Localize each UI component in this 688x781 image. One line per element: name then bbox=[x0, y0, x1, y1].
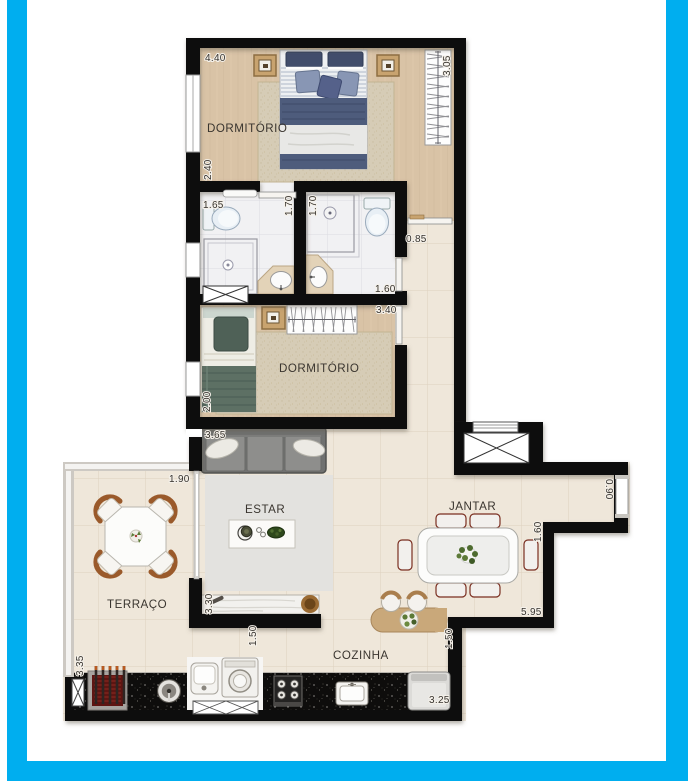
svg-text:COZINHA: COZINHA bbox=[333, 649, 389, 662]
svg-text:0.85: 0.85 bbox=[406, 234, 427, 245]
svg-text:3.40: 3.40 bbox=[376, 305, 397, 316]
svg-text:DORMITÓRIO: DORMITÓRIO bbox=[279, 362, 359, 375]
svg-text:1.90: 1.90 bbox=[169, 474, 190, 485]
svg-text:3.30: 3.30 bbox=[204, 593, 215, 614]
svg-text:2.40: 2.40 bbox=[203, 159, 214, 180]
svg-text:TERRAÇO: TERRAÇO bbox=[107, 598, 167, 611]
svg-text:3.25: 3.25 bbox=[429, 695, 450, 706]
svg-text:1.70: 1.70 bbox=[308, 195, 319, 216]
svg-text:JANTAR: JANTAR bbox=[449, 500, 496, 513]
svg-text:1.60: 1.60 bbox=[375, 284, 396, 295]
svg-text:1.60: 1.60 bbox=[533, 521, 544, 542]
svg-text:1.65: 1.65 bbox=[203, 200, 224, 211]
svg-text:0.90: 0.90 bbox=[603, 479, 614, 500]
svg-text:3.35: 3.35 bbox=[75, 655, 86, 676]
svg-text:1.50: 1.50 bbox=[444, 628, 455, 649]
svg-text:5.95: 5.95 bbox=[521, 607, 542, 618]
svg-text:1.70: 1.70 bbox=[284, 195, 295, 216]
svg-text:4.40: 4.40 bbox=[205, 53, 226, 64]
svg-text:3.05: 3.05 bbox=[442, 55, 453, 76]
svg-text:1.50: 1.50 bbox=[248, 625, 259, 646]
svg-text:ESTAR: ESTAR bbox=[245, 503, 285, 516]
svg-text:DORMITÓRIO: DORMITÓRIO bbox=[207, 122, 287, 135]
svg-text:3.65: 3.65 bbox=[205, 430, 226, 441]
svg-text:2.00: 2.00 bbox=[202, 391, 213, 412]
